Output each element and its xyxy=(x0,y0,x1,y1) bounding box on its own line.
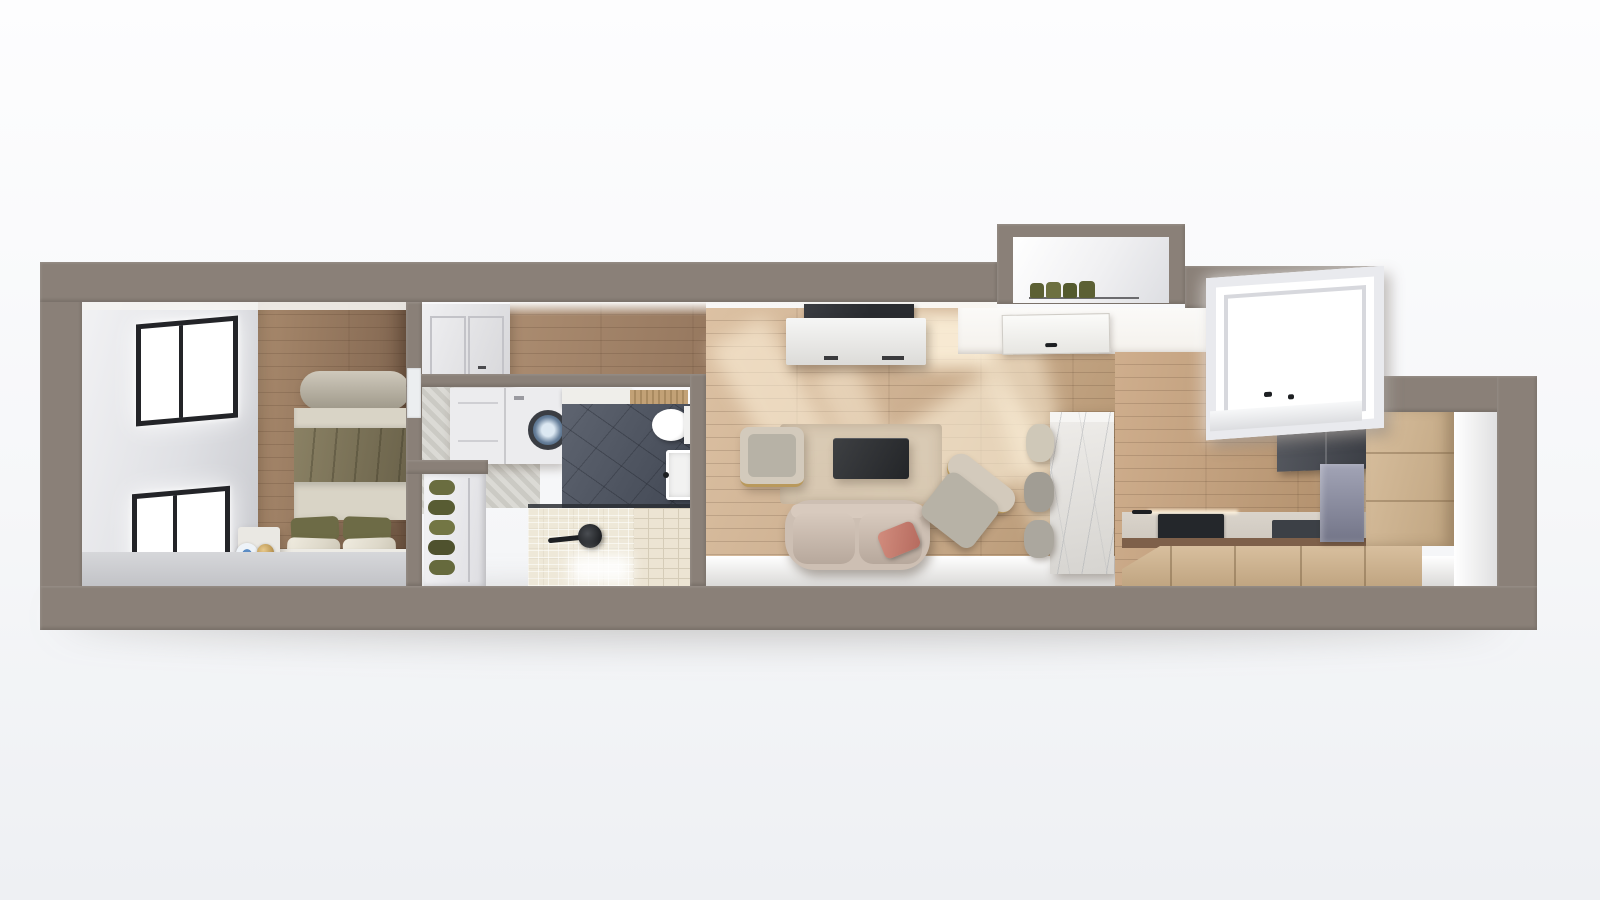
washer-dryer xyxy=(450,388,562,464)
marble-chimney-panel xyxy=(1320,464,1364,542)
cabinet-seam xyxy=(1300,546,1302,588)
potted-plant xyxy=(1063,283,1077,298)
bedroom-divider-wall xyxy=(406,302,422,586)
cabinet-seam xyxy=(1364,546,1366,588)
dryer-panel-line xyxy=(458,440,498,442)
window-inner-frame xyxy=(1224,285,1366,421)
coffee-table xyxy=(833,438,909,479)
bed-duvet xyxy=(294,428,415,484)
towel-closet xyxy=(424,474,486,586)
towel-stack-item xyxy=(428,500,455,515)
tv-console xyxy=(786,318,926,365)
dryer-panel-line xyxy=(458,402,498,404)
washer-controls xyxy=(514,396,524,400)
plant-niche-inner xyxy=(1013,237,1169,303)
bed-foot-bolster xyxy=(300,371,410,410)
outer-wall-bottom xyxy=(40,586,1537,630)
bar-stool-3 xyxy=(1024,520,1054,558)
front-door xyxy=(1002,313,1111,355)
kitchen-island xyxy=(1050,412,1114,574)
window-mullion xyxy=(179,325,183,417)
wardrobe-door-panel xyxy=(468,316,504,376)
bathroom-herringbone-patch xyxy=(485,462,540,508)
towel-stack-item xyxy=(429,560,455,575)
island-top-edge xyxy=(1050,412,1114,422)
cabinet-seam xyxy=(1366,500,1454,502)
bedroom-door-leaf xyxy=(407,368,421,418)
floor-plan-render xyxy=(0,0,1600,900)
shower-head xyxy=(578,524,602,548)
bathroom-right-wall xyxy=(690,374,706,586)
shower-skylight-glow xyxy=(570,554,632,584)
bedroom-ceiling-strip xyxy=(80,302,406,310)
shower-glass-screen xyxy=(528,504,692,508)
armchair-seat xyxy=(748,434,796,477)
towel-stack-item xyxy=(429,480,455,495)
cooktop xyxy=(1158,514,1224,540)
bed-mid-band xyxy=(294,482,412,520)
wardrobe-door-panel xyxy=(430,316,466,376)
sofa-cushion xyxy=(793,512,855,564)
cabinet-seam xyxy=(1366,452,1454,454)
island-faucet xyxy=(1132,510,1152,514)
armchair-left xyxy=(740,427,804,487)
closet-top-wall xyxy=(406,460,488,474)
outer-wall-top-left xyxy=(40,262,997,302)
sink-faucet xyxy=(663,472,669,478)
kitchen-tall-cabinet xyxy=(1366,408,1454,546)
cabinet-seam xyxy=(1170,546,1172,588)
bedroom-bottom-band xyxy=(80,552,406,586)
towel-stack-item xyxy=(429,520,455,535)
towel-stack-item xyxy=(428,540,455,555)
potted-plant xyxy=(1030,283,1044,298)
sofa xyxy=(785,500,930,570)
potted-plant xyxy=(1046,282,1061,298)
console-vent-slot xyxy=(824,356,838,360)
closet-door-line xyxy=(468,478,470,582)
wardrobe-handle xyxy=(478,366,486,369)
kitchen-base-cabinets xyxy=(1122,546,1422,588)
window-handle xyxy=(1288,394,1294,399)
potted-plant xyxy=(1079,281,1095,298)
bed-foot-band xyxy=(294,408,412,430)
wardrobe xyxy=(422,300,510,382)
counter-sink-dark xyxy=(1272,520,1322,540)
washer-seam xyxy=(504,388,506,464)
window-handle xyxy=(1264,392,1272,398)
door-handle xyxy=(1045,343,1057,347)
bar-stool-2 xyxy=(1024,472,1054,512)
cabinet-seam xyxy=(1234,546,1236,588)
bar-stool-1 xyxy=(1026,424,1054,462)
console-vent-slot xyxy=(882,356,904,360)
kitchen-right-wall-face xyxy=(1454,398,1498,588)
bedroom-window-1 xyxy=(136,316,238,427)
outer-wall-left xyxy=(40,262,82,630)
bathroom-top-wall xyxy=(406,374,706,387)
